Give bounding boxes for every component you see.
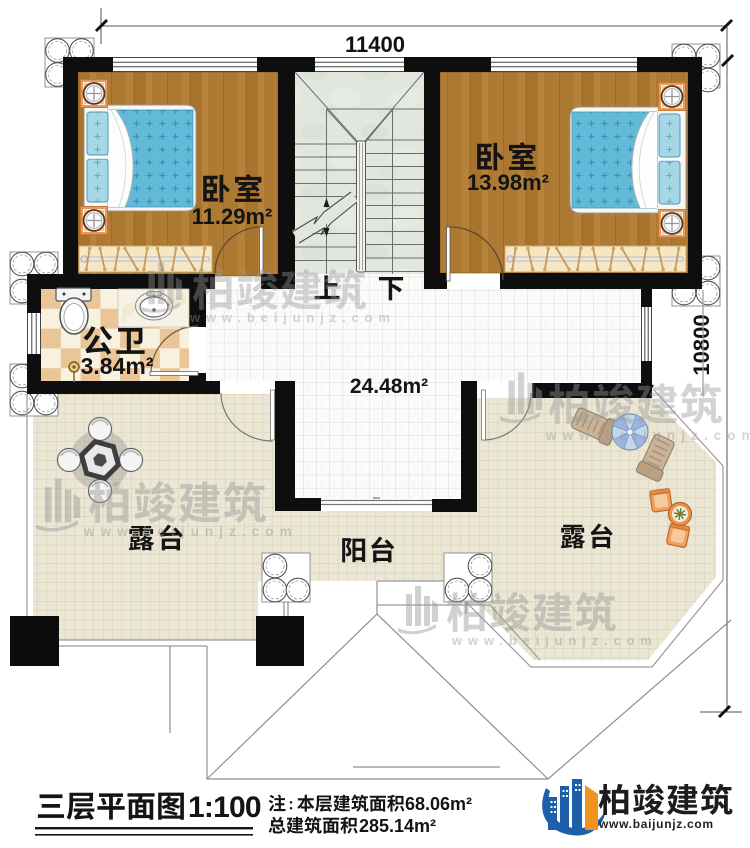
svg-text:www.beijunjz.com: www.beijunjz.com xyxy=(545,428,750,443)
svg-text:www.beijunjz.com: www.beijunjz.com xyxy=(83,524,298,539)
svg-text:www.beijunjz.com: www.beijunjz.com xyxy=(189,310,396,325)
svg-text:11400: 11400 xyxy=(345,32,405,57)
svg-text:24.48m²: 24.48m² xyxy=(350,375,428,398)
svg-text:10800: 10800 xyxy=(689,314,714,375)
svg-text:68.06m²: 68.06m² xyxy=(405,794,472,814)
svg-text:285.14m²: 285.14m² xyxy=(359,816,436,836)
svg-text:3.84m²: 3.84m² xyxy=(81,353,154,379)
svg-text:13.98m²: 13.98m² xyxy=(467,170,549,195)
svg-text:www.baijunjz.com: www.baijunjz.com xyxy=(598,817,714,831)
svg-text:www.beijunjz.com: www.beijunjz.com xyxy=(451,633,658,648)
svg-text:1:100: 1:100 xyxy=(188,791,261,824)
svg-text:11.29m²: 11.29m² xyxy=(192,204,273,229)
